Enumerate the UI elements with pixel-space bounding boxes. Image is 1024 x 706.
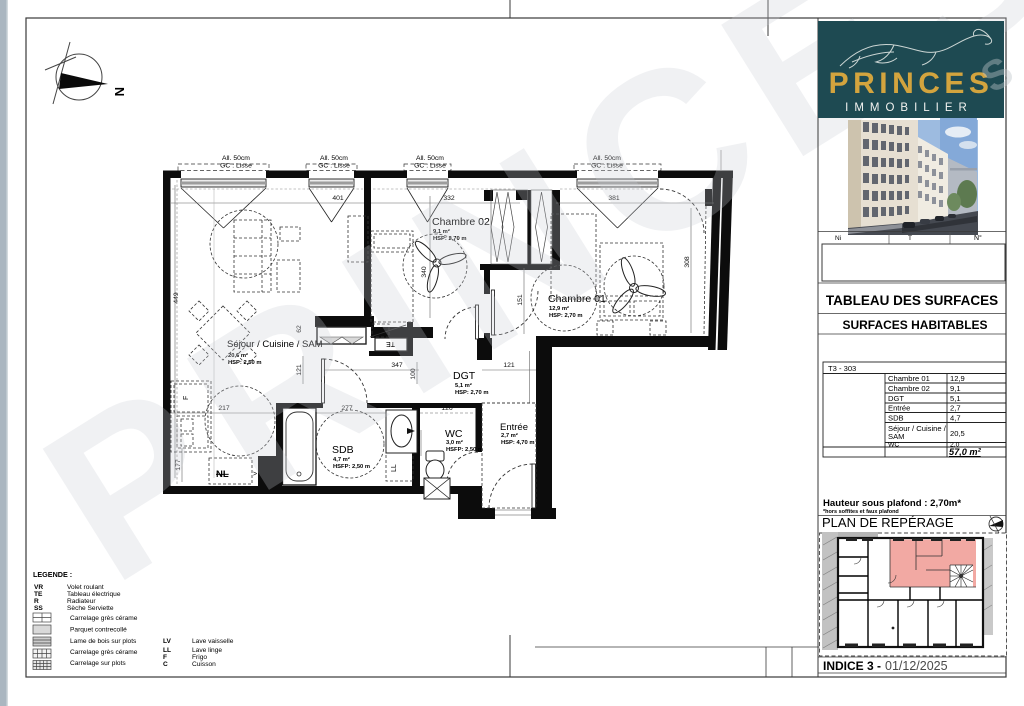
svg-text:T: T: [908, 235, 912, 242]
svg-text:12,9: 12,9: [950, 374, 965, 383]
svg-text:IMMOBILIER: IMMOBILIER: [845, 102, 973, 114]
svg-text:TABLEAU DES SURFACES: TABLEAU DES SURFACES: [826, 293, 998, 308]
svg-text:SS: SS: [34, 605, 43, 612]
svg-text:57,0 m²: 57,0 m²: [949, 447, 982, 457]
svg-text:4,7: 4,7: [950, 414, 961, 423]
svg-text:Carrelage grès cérame: Carrelage grès cérame: [70, 615, 138, 622]
svg-text:Lave linge: Lave linge: [192, 647, 222, 654]
svg-text:GC : Lisse: GC : Lisse: [220, 163, 252, 170]
svg-text:SAM: SAM: [888, 432, 904, 441]
svg-text:Parquet contrecollé: Parquet contrecollé: [70, 627, 127, 634]
svg-text:Carrelage grès cérame: Carrelage grès cérame: [70, 649, 138, 656]
svg-text:WC: WC: [888, 442, 899, 449]
svg-text:Chambre 02: Chambre 02: [888, 384, 930, 393]
svg-text:C: C: [163, 661, 168, 668]
svg-text:Lave vaisselle: Lave vaisselle: [192, 638, 234, 645]
svg-text:20,5: 20,5: [950, 429, 965, 438]
svg-text:Frigo: Frigo: [192, 654, 207, 661]
svg-text:SDB: SDB: [888, 414, 904, 423]
svg-text:2,7: 2,7: [950, 404, 961, 413]
svg-text:HSP: 4,70 m: HSP: 4,70 m: [501, 440, 535, 446]
svg-text:Entrée: Entrée: [500, 422, 528, 433]
svg-text:TE: TE: [34, 591, 43, 598]
svg-text:N: N: [112, 87, 127, 96]
svg-text:LL: LL: [163, 647, 171, 654]
svg-text:Radiateur: Radiateur: [67, 598, 96, 605]
svg-text:2,7 m²: 2,7 m²: [501, 432, 518, 439]
svg-text:Sèche Serviette: Sèche Serviette: [67, 605, 114, 612]
svg-text:LV: LV: [163, 638, 172, 645]
svg-text:DGT: DGT: [888, 394, 904, 403]
svg-text:Chambre 01: Chambre 01: [888, 374, 930, 383]
svg-text:INDICE 3 -: INDICE 3 -: [823, 659, 881, 673]
svg-text:401: 401: [332, 195, 344, 202]
svg-text:Cuisson: Cuisson: [192, 661, 216, 668]
svg-text:Entrée: Entrée: [888, 404, 910, 413]
svg-text:R: R: [34, 598, 39, 605]
svg-text:LEGENDE :: LEGENDE :: [33, 570, 72, 579]
svg-text:Hauteur sous plafond : 2,70m*: Hauteur sous plafond : 2,70m*: [823, 498, 961, 509]
svg-text:SURFACES HABITABLES: SURFACES HABITABLES: [842, 318, 987, 332]
svg-text:Volet roulant: Volet roulant: [67, 584, 104, 591]
svg-text:N°: N°: [974, 234, 982, 242]
svg-text:449: 449: [173, 292, 180, 304]
svg-text:Ni: Ni: [835, 235, 841, 242]
svg-text:Tableau électrique: Tableau électrique: [67, 591, 121, 598]
svg-text:9,1: 9,1: [950, 384, 961, 393]
svg-text:PLAN DE REPÉRAGE: PLAN DE REPÉRAGE: [822, 515, 954, 530]
svg-text:F: F: [163, 654, 167, 661]
svg-text:3,0 m²: 3,0 m²: [446, 439, 463, 446]
svg-text:Lame de bois sur plots: Lame de bois sur plots: [70, 638, 137, 645]
svg-text:All. 50cm: All. 50cm: [320, 155, 348, 162]
svg-text:T3 - 303: T3 - 303: [828, 364, 856, 373]
svg-text:GC : Lisse: GC : Lisse: [318, 163, 350, 170]
svg-text:VR: VR: [34, 584, 43, 591]
svg-text:01/12/2025: 01/12/2025: [885, 659, 948, 673]
svg-text:Carrelage sur plots: Carrelage sur plots: [70, 660, 126, 667]
svg-text:PRINCES: PRINCES: [829, 67, 994, 100]
svg-text:All. 50cm: All. 50cm: [222, 155, 250, 162]
svg-text:5,1: 5,1: [950, 394, 961, 403]
